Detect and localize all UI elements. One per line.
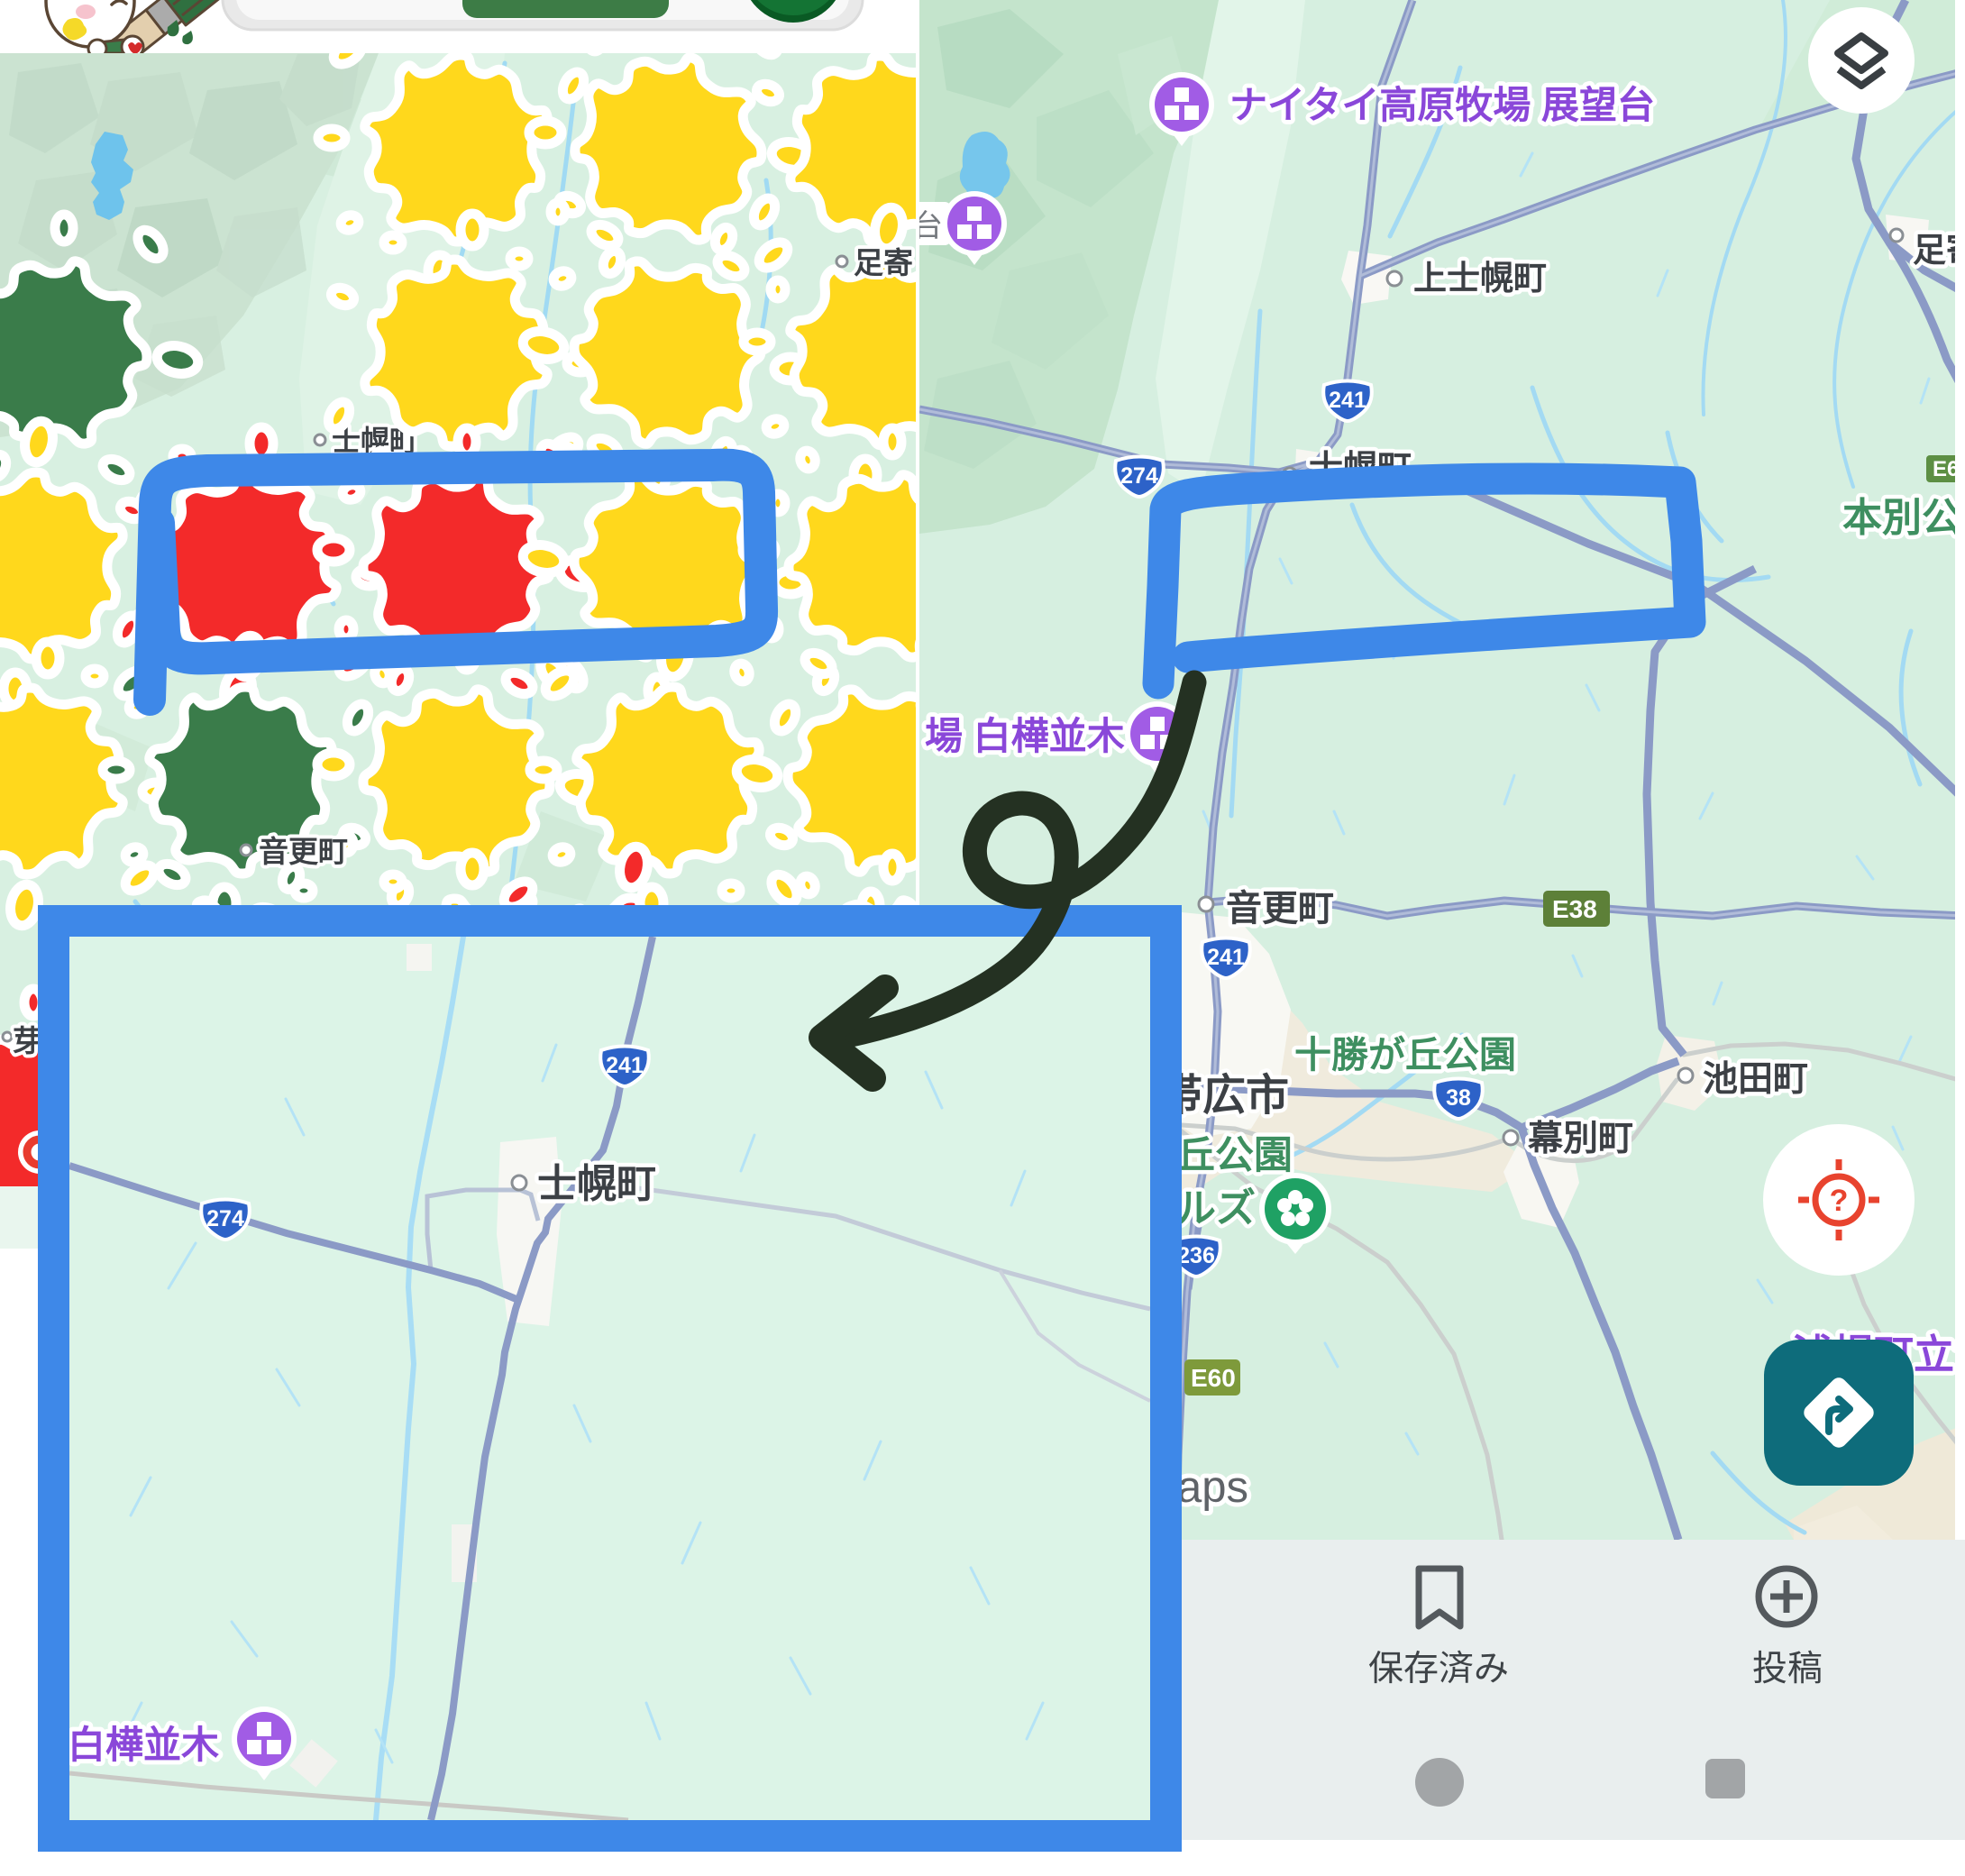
svg-text:十勝が丘公園: 十勝が丘公園: [1294, 1034, 1516, 1075]
svg-text:足寄: 足寄: [854, 246, 913, 279]
svg-text:E38: E38: [1552, 895, 1597, 923]
svg-text:E6: E6: [1933, 457, 1959, 481]
svg-text:投稿: 投稿: [1752, 1650, 1823, 1688]
svg-text:保存済み: 保存済み: [1368, 1650, 1509, 1688]
svg-text:ナイタイ高原牧場 展望台: ナイタイ高原牧場 展望台: [1229, 84, 1655, 126]
svg-text:274: 274: [1120, 463, 1158, 489]
svg-text:音更町: 音更町: [259, 835, 348, 868]
svg-text:?: ?: [1830, 1184, 1849, 1218]
svg-text:241: 241: [1207, 945, 1245, 970]
svg-text:士幌町: 士幌町: [537, 1162, 656, 1206]
svg-text:音更町: 音更町: [1226, 889, 1334, 929]
svg-text:236: 236: [1177, 1243, 1215, 1268]
svg-text:241: 241: [1329, 388, 1366, 413]
svg-text:274: 274: [206, 1206, 244, 1231]
svg-text:241: 241: [606, 1053, 644, 1078]
svg-text:aps: aps: [1177, 1463, 1248, 1512]
svg-text:幕別町: 幕別町: [1527, 1120, 1633, 1158]
svg-text:池田町: 池田町: [1703, 1060, 1808, 1099]
svg-text:本別公: 本別公: [1842, 496, 1961, 540]
svg-text:丘公園: 丘公園: [1176, 1134, 1293, 1177]
svg-text:白樺並木: 白樺並木: [69, 1724, 219, 1766]
svg-text:ルズ: ルズ: [1176, 1186, 1256, 1231]
svg-text:38: 38: [1446, 1085, 1471, 1111]
svg-text:場 白樺並木: 場 白樺並木: [925, 715, 1125, 757]
svg-text:E60: E60: [1191, 1364, 1236, 1392]
svg-text:上士幌町: 上士幌町: [1413, 260, 1547, 297]
